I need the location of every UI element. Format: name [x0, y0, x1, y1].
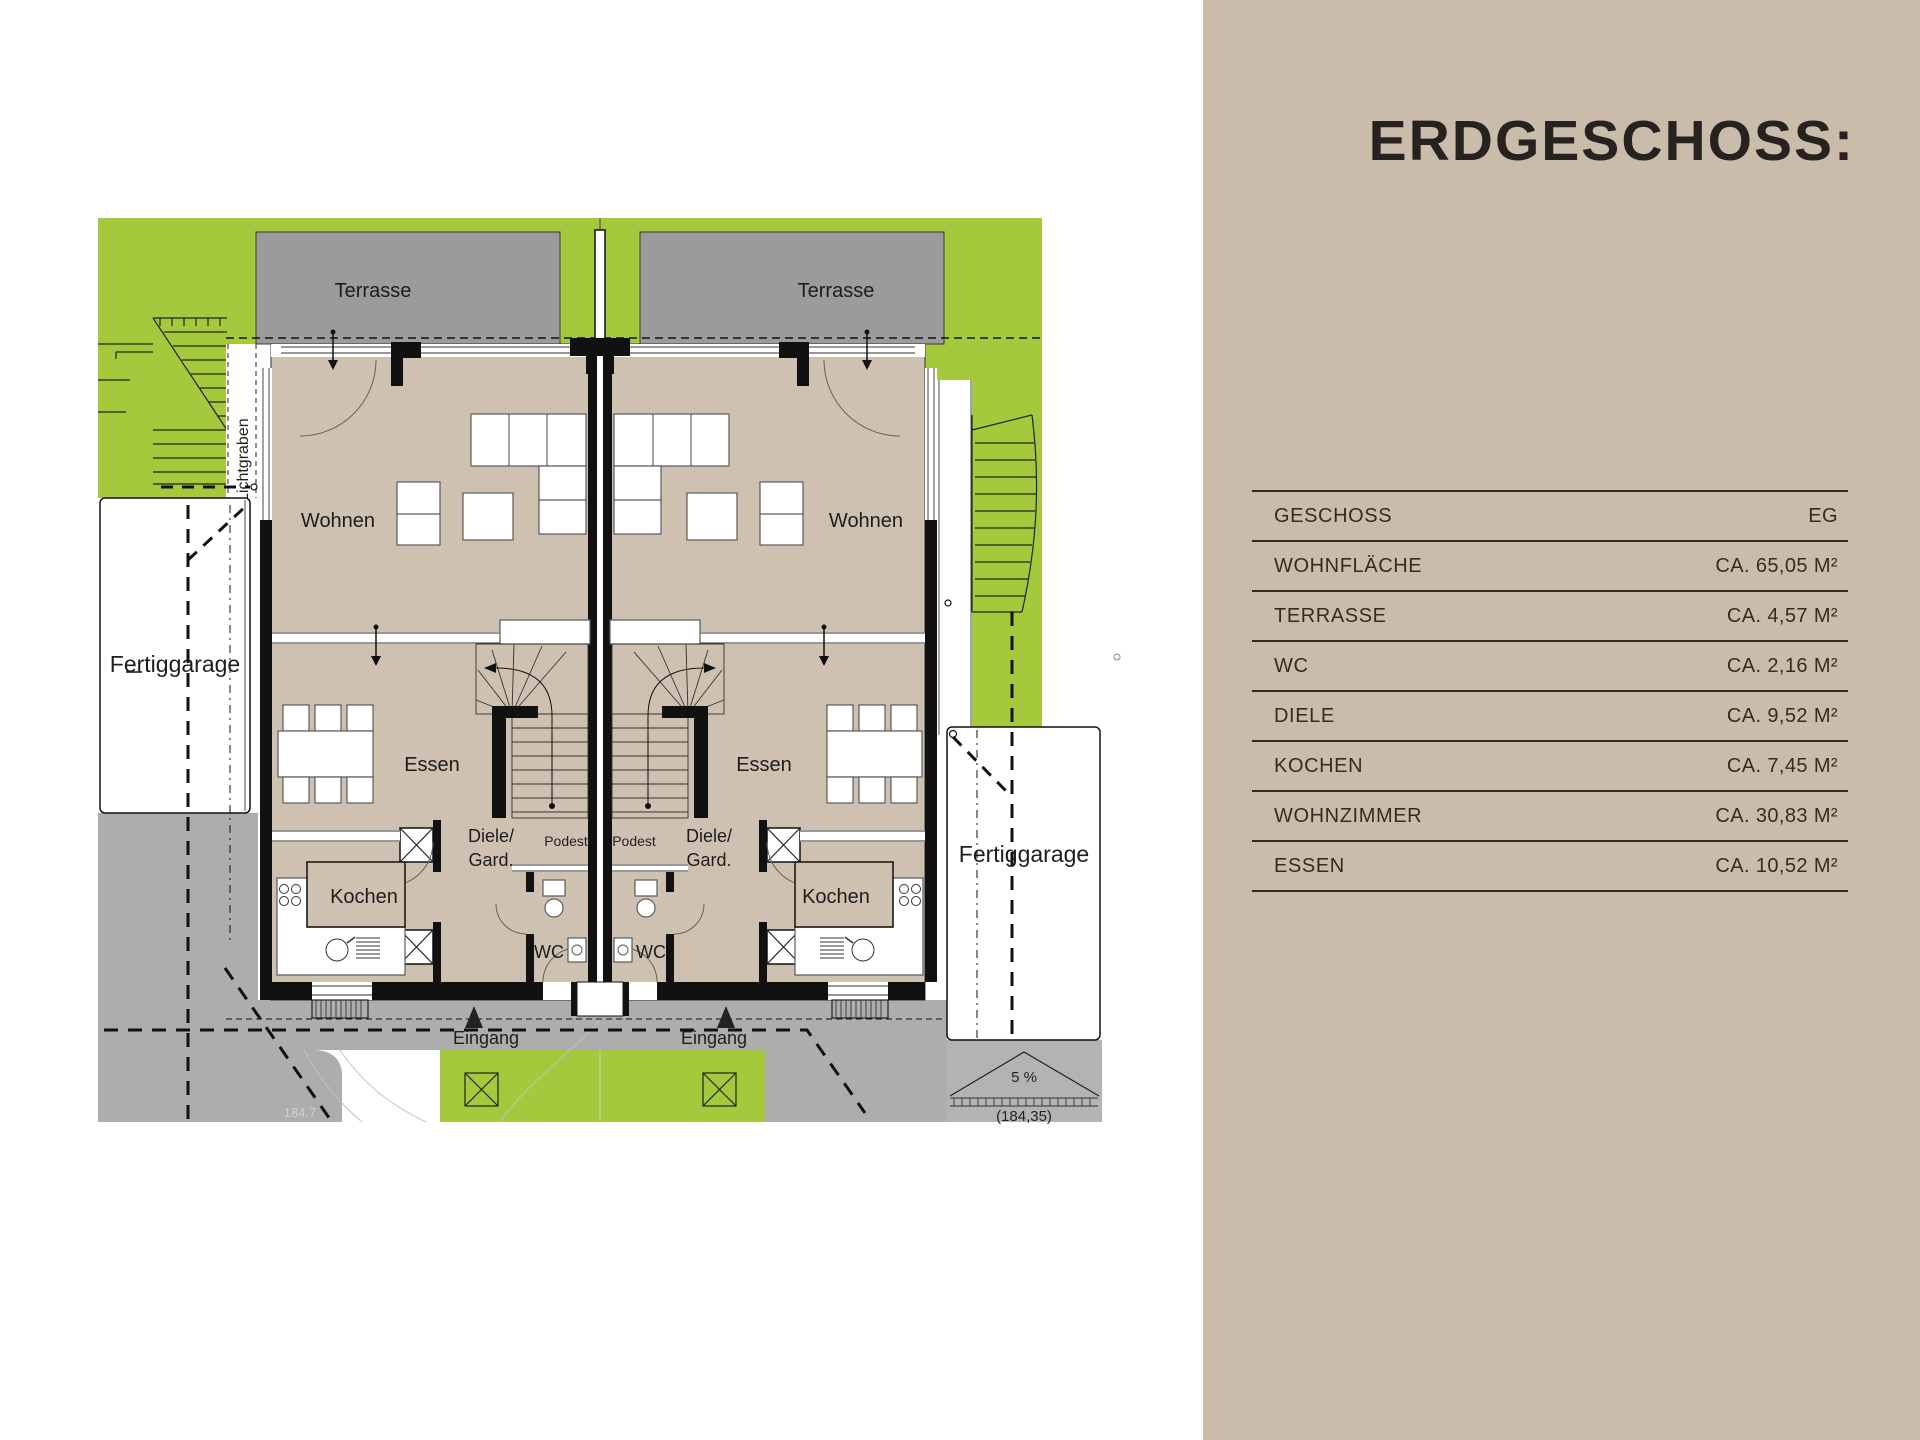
wall-wohnen-essen-right	[688, 632, 925, 644]
terrace-right	[640, 232, 944, 344]
garage-right-label: Fertiggarage	[959, 841, 1089, 867]
table-row: KOCHEN CA. 7,45 M²	[1252, 742, 1848, 792]
paving-bottom-right	[765, 1050, 947, 1122]
diele-left-label-1: Diele/	[468, 826, 514, 846]
kochen-left-label: Kochen	[330, 886, 398, 908]
wardrobe-left	[500, 620, 590, 644]
wc-left-label: WC	[534, 942, 564, 962]
level-label: (184,35)	[996, 1108, 1052, 1125]
podest-right-label: Podest	[612, 833, 656, 849]
essen-right-label: Essen	[736, 754, 792, 776]
floor-plan-drawing: Lichtgraben Terrasse Terrasse	[0, 0, 1203, 1440]
table-row: WOHNFLÄCHE CA. 65,05 M²	[1252, 542, 1848, 592]
row-value: CA. 65,05 M²	[1715, 555, 1838, 578]
garage-left-label: Fertiggarage	[110, 651, 240, 677]
row-label: DIELE	[1274, 705, 1335, 728]
page: Lichtgraben Terrasse Terrasse	[0, 0, 1920, 1440]
row-label: KOCHEN	[1274, 755, 1363, 778]
row-value: CA. 10,52 M²	[1715, 855, 1838, 878]
kitchen-right	[795, 862, 923, 975]
row-value: CA. 4,57 M²	[1727, 605, 1838, 628]
driveway-left	[98, 813, 258, 1122]
wohnen-right-label: Wohnen	[829, 510, 903, 532]
west-wall	[260, 520, 272, 982]
kochen-right-label: Kochen	[802, 886, 870, 908]
row-label: ESSEN	[1274, 855, 1345, 878]
eingang-right-label: Eingang	[681, 1028, 747, 1048]
row-value: CA. 2,16 M²	[1727, 655, 1838, 678]
slope-label: 5 %	[1011, 1069, 1037, 1086]
row-label: WOHNZIMMER	[1274, 805, 1422, 828]
row-label: WOHNFLÄCHE	[1274, 555, 1422, 578]
diele-left-label-2: Gard.	[468, 850, 513, 870]
essen-left-label: Essen	[404, 754, 460, 776]
wc-right-label: WC	[636, 942, 666, 962]
eingang-left-label: Eingang	[453, 1028, 519, 1048]
table-row: WOHNZIMMER CA. 30,83 M²	[1252, 792, 1848, 842]
dining-set-left	[278, 705, 373, 803]
row-value: EG	[1808, 505, 1838, 528]
contour-line	[340, 1050, 426, 1122]
terrace-right-label: Terrasse	[798, 280, 875, 302]
wohnen-left-label: Wohnen	[301, 510, 375, 532]
page-title: ERDGESCHOSS:	[1203, 108, 1855, 174]
area-table: GESCHOSS EG WOHNFLÄCHE CA. 65,05 M² TERR…	[1252, 490, 1848, 892]
row-label: WC	[1274, 655, 1309, 678]
elevation-label: 184.7	[284, 1105, 317, 1120]
table-row: ESSEN CA. 10,52 M²	[1252, 842, 1848, 892]
row-label: GESCHOSS	[1274, 505, 1392, 528]
terrace-divider-fence	[595, 230, 605, 344]
table-row: TERRASSE CA. 4,57 M²	[1252, 592, 1848, 642]
kitchen-left	[277, 862, 405, 975]
floor-plan: Lichtgraben Terrasse Terrasse	[0, 0, 1203, 1440]
survey-point	[1114, 654, 1120, 660]
party-wall	[588, 356, 597, 1015]
row-value: CA. 7,45 M²	[1727, 755, 1838, 778]
entry-porch	[577, 982, 623, 1016]
dining-set-right	[827, 705, 922, 803]
lightwell-right	[938, 380, 972, 735]
diele-right-label-1: Diele/	[686, 826, 732, 846]
wardrobe-right	[610, 620, 700, 644]
table-row: DIELE CA. 9,52 M²	[1252, 692, 1848, 742]
row-value: CA. 30,83 M²	[1715, 805, 1838, 828]
terrace-left-label: Terrasse	[335, 280, 412, 302]
table-row: WC CA. 2,16 M²	[1252, 642, 1848, 692]
lichtgraben-label: Lichtgraben	[235, 418, 252, 502]
wall-wohnen-essen-left	[272, 632, 512, 644]
east-wall	[925, 520, 937, 982]
row-value: CA. 9,52 M²	[1727, 705, 1838, 728]
table-row: GESCHOSS EG	[1252, 492, 1848, 542]
podest-left-label: Podest	[544, 833, 588, 849]
info-panel: ERDGESCHOSS: GESCHOSS EG WOHNFLÄCHE CA. …	[1203, 0, 1920, 1440]
diele-right-label-2: Gard.	[686, 850, 731, 870]
row-label: TERRASSE	[1274, 605, 1387, 628]
